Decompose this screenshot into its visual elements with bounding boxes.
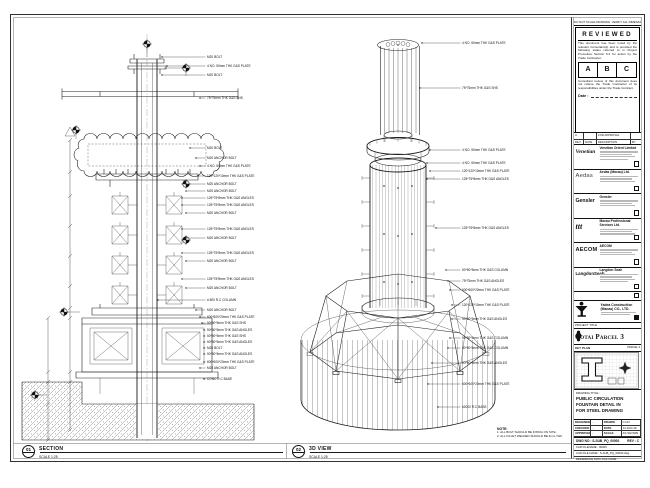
leader-dot xyxy=(181,228,182,229)
annotation-label: M20 ANCHOR BOLT xyxy=(207,286,237,290)
annotation-label: 50*50*5mm THK G&S ANGLES xyxy=(462,317,507,321)
yadea-logo-icon xyxy=(576,303,599,321)
annotation-label: 125*75*8mm THK G&S ANGLES xyxy=(462,177,509,181)
drawing-title-box: DRAWING TITLE : PUBLIC CIRCULATION FOUNT… xyxy=(574,390,641,420)
contractor-box: Yadea Construction (Macau) CO., LTD. xyxy=(574,301,641,323)
leader-dot xyxy=(199,97,200,98)
leader-dot xyxy=(426,178,427,179)
annotation-label: M20 ANCHOR BOLT xyxy=(207,182,237,186)
section-view-drawing: M20 BOLT4 NO. 50mm THK G&S PLATEM20 BOLT… xyxy=(22,34,255,442)
signoff-value: AS SHOWN xyxy=(622,431,641,437)
annotation-label: 75*75mm THK G&S ANGLES xyxy=(462,279,504,283)
consultant-name: Macau Professional Services Ltd. xyxy=(600,220,640,228)
leader-dot xyxy=(447,280,448,281)
rev-label: REV : xyxy=(627,439,636,443)
consultant-name: Langdon Seah xyxy=(600,269,640,273)
iso-view-label: 02 3D VIEW SCALE 1:25 xyxy=(292,445,562,461)
address-line xyxy=(600,176,638,177)
address-line xyxy=(600,281,629,282)
address-line xyxy=(600,181,635,182)
leader-dot xyxy=(445,269,446,270)
status-c: C xyxy=(617,63,636,77)
annotation-label: 75*75mm THK G&S SHS xyxy=(207,96,243,100)
checkbox xyxy=(634,284,640,290)
leader-dot xyxy=(199,165,200,166)
address-line xyxy=(600,229,638,230)
rev-cell xyxy=(631,133,641,139)
leader-dot xyxy=(157,299,158,300)
leader-dot xyxy=(185,190,186,191)
consultant-name: Venetian Orient Limited xyxy=(600,147,640,151)
signoff-table: DESIGNED-DRAWNC.HOCHECKED-DATE14-JUN-16A… xyxy=(574,420,641,438)
consultant-logo: ttt xyxy=(576,220,599,241)
leader-dot xyxy=(161,74,162,75)
address-line xyxy=(600,151,638,152)
annotation-label: 120*120*10mm THK G&S PLATE xyxy=(462,303,510,307)
leader-dot xyxy=(451,318,452,319)
project-banner: Cotai Parcel 3 xyxy=(574,329,641,345)
leader-dot xyxy=(429,170,430,171)
revision-cloud xyxy=(74,134,224,177)
annotation-label: 50*50*5mm THK G&S ANGLES xyxy=(462,361,507,365)
leader-dot xyxy=(189,147,190,148)
annotation-label: 4 NO. 50mm THK G&S PLATE xyxy=(462,41,506,45)
annotation-label: 125*75*8mm THK G&S ANGLES xyxy=(207,277,254,281)
annotation-label: 4 NO. 50mm THK G&S PLATE xyxy=(462,148,506,152)
key-plan-label: KEY PLAN xyxy=(575,345,590,351)
logo-text: Gensler xyxy=(576,198,595,204)
leader-dot xyxy=(181,252,182,253)
leader-dot xyxy=(201,322,202,323)
logo-text: ttt xyxy=(576,222,583,231)
drawing-title-line: FOUNTAIN DETAIL IN xyxy=(576,402,639,407)
consultant-logo: AECOM xyxy=(576,245,599,266)
annotation-label: 4 NO. 50mm THK G&S PLATE xyxy=(207,164,251,168)
consultant-logo: Gensler xyxy=(576,196,599,217)
drawing-title-line: FOR STEEL DRAWING xyxy=(576,408,639,413)
leader-dot xyxy=(199,367,200,368)
annotation-label: 125*75*8mm THK G&S ANGLES xyxy=(207,227,254,231)
leader-dot xyxy=(203,353,204,354)
annotation-label: 50*50*5mm THK G&S COLUMN xyxy=(462,346,509,350)
annotation-label: M20 BOLT xyxy=(207,55,222,59)
leader-dot xyxy=(181,204,182,205)
checkbox xyxy=(634,210,640,216)
logo-text: Aedas xyxy=(576,173,593,179)
annotation-label: M20 ANCHOR BOLT xyxy=(207,156,237,160)
annotation-label: 75*75mm THK G&S SHS xyxy=(462,86,498,90)
empty-box xyxy=(574,292,641,301)
date-row: Date : xyxy=(578,93,637,98)
leader-dot xyxy=(195,157,196,158)
disclaimer-strip: DO NOT SCALE DRAWING. VERIFY ALL DIMENSI… xyxy=(574,18,641,26)
address-line xyxy=(600,203,632,204)
view-scale: SCALE 1:25 xyxy=(39,455,58,459)
reviewed-paragraph: Consultant review of this document does … xyxy=(578,80,637,91)
leader-dot xyxy=(449,337,450,338)
contractor-name: Yadea Construction (Macau) CO., LTD. xyxy=(601,303,640,311)
annotation-label: # 800 R.C COLUMN xyxy=(207,298,237,302)
annotation-label: M20 ANCHOR BOLT xyxy=(207,211,237,215)
annotation-label: 125*75*8mm THK G&S ANGLES xyxy=(207,196,254,200)
consultant-logo: Venetian xyxy=(576,147,599,168)
leader-dot xyxy=(166,65,167,66)
rev-cell: FOR APPROVAL xyxy=(597,133,631,139)
annotation-label: M20 BOLT xyxy=(207,73,222,77)
dwg-label: DWG NO : xyxy=(576,439,591,443)
checkbox xyxy=(634,259,640,265)
leader-dot xyxy=(203,378,204,379)
leader-dot xyxy=(451,304,452,305)
address-line xyxy=(600,205,635,206)
address-line xyxy=(600,231,632,232)
consultant-list: VenetianVenetian Orient LimitedAedasAeda… xyxy=(574,145,641,292)
consultant-name: Gensler xyxy=(600,196,640,200)
consultant-row: AedasAedas (Macau) Ltd. xyxy=(574,170,641,195)
dwg-value: S-SUB_PQ_00000 xyxy=(592,439,619,443)
checkbox xyxy=(634,186,640,192)
annotation-label: 4 NO. 50mm THK G&S PLATE xyxy=(207,64,251,68)
leader-dot xyxy=(203,335,204,336)
title-block: DO NOT SCALE DRAWING. VERIFY ALL DIMENSI… xyxy=(574,18,641,458)
address-line xyxy=(600,252,632,253)
signoff-label: APPROVED xyxy=(574,431,591,437)
pipe-cluster xyxy=(378,40,420,143)
annotation-label: 50*50*5mm THK G&S ANGLES xyxy=(207,340,252,344)
consultant-row: LangdonSeahLangdon Seah xyxy=(574,268,641,292)
date-label: Date : xyxy=(578,94,589,98)
consultant-row: GenslerGensler xyxy=(574,194,641,219)
address-line xyxy=(600,249,638,250)
annotation-label: CONC R.C BASE xyxy=(207,377,232,381)
address-line xyxy=(600,233,635,234)
leader-dot xyxy=(426,162,427,163)
annotation-label: M20 ANCHOR BOLT xyxy=(207,366,237,370)
leader-dot xyxy=(185,260,186,261)
view-badge: 01 xyxy=(23,448,34,453)
key-plan-header: KEY PLAN PARCEL 3 xyxy=(574,345,641,352)
view-scale: SCALE 1:25 xyxy=(309,455,328,459)
general-notes: NOTE: 1. ALL BOLT SHOULD BE FIXING ON SI… xyxy=(497,427,569,438)
view-title: SECTION xyxy=(39,446,63,452)
status-a: A xyxy=(579,63,598,77)
address-line xyxy=(600,279,635,280)
leader-dot xyxy=(449,289,450,290)
logo-text: Venetian xyxy=(576,149,596,155)
annotation-label: M20 ANCHOR BOLT xyxy=(207,236,237,240)
leader-dot xyxy=(435,227,436,228)
annotation-label: 125*75*8mm THK G&S ANGLES xyxy=(207,251,254,255)
reviewed-stamp: REVIEWED This document has been noted by… xyxy=(575,27,640,133)
rev-value: C xyxy=(637,439,639,443)
leader-dot xyxy=(161,56,162,57)
leader-dot xyxy=(181,197,182,198)
status-b: B xyxy=(598,63,617,77)
leader-dot xyxy=(195,309,196,310)
leader-dot xyxy=(197,175,198,176)
address-line xyxy=(600,276,632,277)
address-line xyxy=(600,159,629,160)
leader-dot xyxy=(185,237,186,238)
status-row: A B C xyxy=(578,62,637,78)
address-line xyxy=(600,200,638,201)
leader-dot xyxy=(181,278,182,279)
annotation-label: 50*50*5mm THK G&S COLUMN xyxy=(462,268,509,272)
consultant-row: VenetianVenetian Orient Limited xyxy=(574,145,641,170)
signoff-label: SCALE xyxy=(603,431,622,437)
dwg-number-row: DWG NO : S-SUB_PQ_00000 REV : C xyxy=(574,438,641,445)
note-item: 2. ALL FILLET WELDED SHOULD BE 6mm THK. xyxy=(497,435,569,439)
annotation-label: 50*50*5mm THK G&S SHS xyxy=(207,321,246,325)
ornament-icon xyxy=(574,329,583,343)
checkbox xyxy=(634,293,640,299)
address-line xyxy=(600,156,635,157)
annotation-label: #2000 R.C BASE xyxy=(462,405,487,409)
reviewed-paragraph: This document has been noted by the rele… xyxy=(578,42,637,61)
consultant-row: AECOMAECOM xyxy=(574,243,641,268)
leader-dot xyxy=(421,42,422,43)
annotation-label: 600*600*20mm THK G&S PLATE xyxy=(462,382,510,386)
key-plan-sub: PARCEL 3 xyxy=(627,345,640,351)
section-view-label: 01 SECTION SCALE 1:25 xyxy=(22,445,282,461)
annotation-label: 600*600*20mm THK G&S PLATE xyxy=(207,360,255,364)
rev-cell xyxy=(584,133,597,139)
reviewed-title: REVIEWED xyxy=(578,29,637,41)
annotation-label: 50*50*5mm THK G&S COLUMN xyxy=(462,336,509,340)
address-line xyxy=(600,274,638,275)
file-row: REFERENCE DWG FILE NAME : xyxy=(574,457,641,462)
annotation-label: M20 BOLT xyxy=(207,146,222,150)
checkbox xyxy=(634,235,640,241)
leader-dot xyxy=(429,149,430,150)
leader-dot xyxy=(431,362,432,363)
annotation-label: 50*50*5mm THK G&S ANGLES xyxy=(207,328,252,332)
leader-dot xyxy=(427,383,428,384)
annotation-label: 4 NO. 50mm THK G&S PLATE xyxy=(462,161,506,165)
annotation-label: M20 BOLT xyxy=(207,346,222,350)
annotation-label: 600*600*20mm THK G&S PLATE xyxy=(207,315,255,319)
consultant-logo: Aedas xyxy=(576,171,599,192)
leader-dot xyxy=(203,347,204,348)
annotation-label: M20 ANCHOR BOLT xyxy=(207,259,237,263)
logo-text: AECOM xyxy=(576,247,598,253)
annotation-label: M20 ANCHOR BOLT xyxy=(207,189,237,193)
leader-dot xyxy=(185,183,186,184)
leader-dot xyxy=(185,287,186,288)
drawing-title-line: PUBLIC CIRCULATION xyxy=(576,396,639,401)
annotation-label: 120*120*10mm THK G&S PLATE xyxy=(207,174,255,178)
rev-cell: A xyxy=(574,133,584,139)
annotation-label: 120*120*10mm THK G&S PLATE xyxy=(462,169,510,173)
consultant-logo: LangdonSeah xyxy=(576,269,599,290)
annotation-label: M20 ANCHOR BOLT xyxy=(207,308,237,312)
leader-dot xyxy=(203,329,204,330)
address-line xyxy=(600,178,632,179)
checkbox xyxy=(634,161,640,167)
annotation-label: 125*75*8mm THK G&S ANGLES xyxy=(207,203,254,207)
consultant-name: AECOM xyxy=(600,245,640,249)
leader-dot xyxy=(447,347,448,348)
detail-bubble: 01 xyxy=(22,445,35,458)
detail-bubble: 02 xyxy=(292,445,305,458)
date-line xyxy=(591,93,637,98)
leader-dot xyxy=(437,406,438,407)
drawing-title-label: DRAWING TITLE : xyxy=(576,391,639,395)
leader-dot xyxy=(419,87,420,88)
annotation-label: 50*50*5mm THK G&S ANGLES xyxy=(207,352,252,356)
reviewed-stamp-wrap: REVIEWED This document has been noted by… xyxy=(574,26,641,133)
address-line xyxy=(600,254,635,255)
signoff-value: - xyxy=(591,431,602,437)
revision-table: A FOR APPROVAL REV DATE DESCRIPTION BY xyxy=(574,133,641,145)
leader-dot xyxy=(185,212,186,213)
drawing-canvas: M20 BOLT4 NO. 50mm THK G&S PLATEM20 BOLT… xyxy=(0,0,650,488)
leader-dot xyxy=(199,316,200,317)
address-line xyxy=(600,154,632,155)
iso-view-drawing: 4 NO. 50mm THK G&S PLATE75*75mm THK G&S … xyxy=(301,40,510,431)
view-title: 3D VIEW xyxy=(309,446,332,452)
key-plan-map xyxy=(574,352,641,390)
checkbox-filled xyxy=(634,315,640,321)
leader-dot xyxy=(203,361,204,362)
annotation-label: 125*75*8mm THK G&S ANGLES xyxy=(462,226,509,230)
annotation-label: 50*50*5mm THK G&S SHS xyxy=(207,334,246,338)
consultant-name: Aedas (Macau) Ltd. xyxy=(600,171,640,175)
view-badge: 02 xyxy=(293,448,304,453)
leader-dot xyxy=(203,341,204,342)
annotation-label: 600*600*20mm THK G&S PLATE xyxy=(462,288,510,292)
consultant-row: tttMacau Professional Services Ltd. xyxy=(574,219,641,244)
drawing-sheet: M20 BOLT4 NO. 50mm THK G&S PLATEM20 BOLT… xyxy=(0,0,650,488)
